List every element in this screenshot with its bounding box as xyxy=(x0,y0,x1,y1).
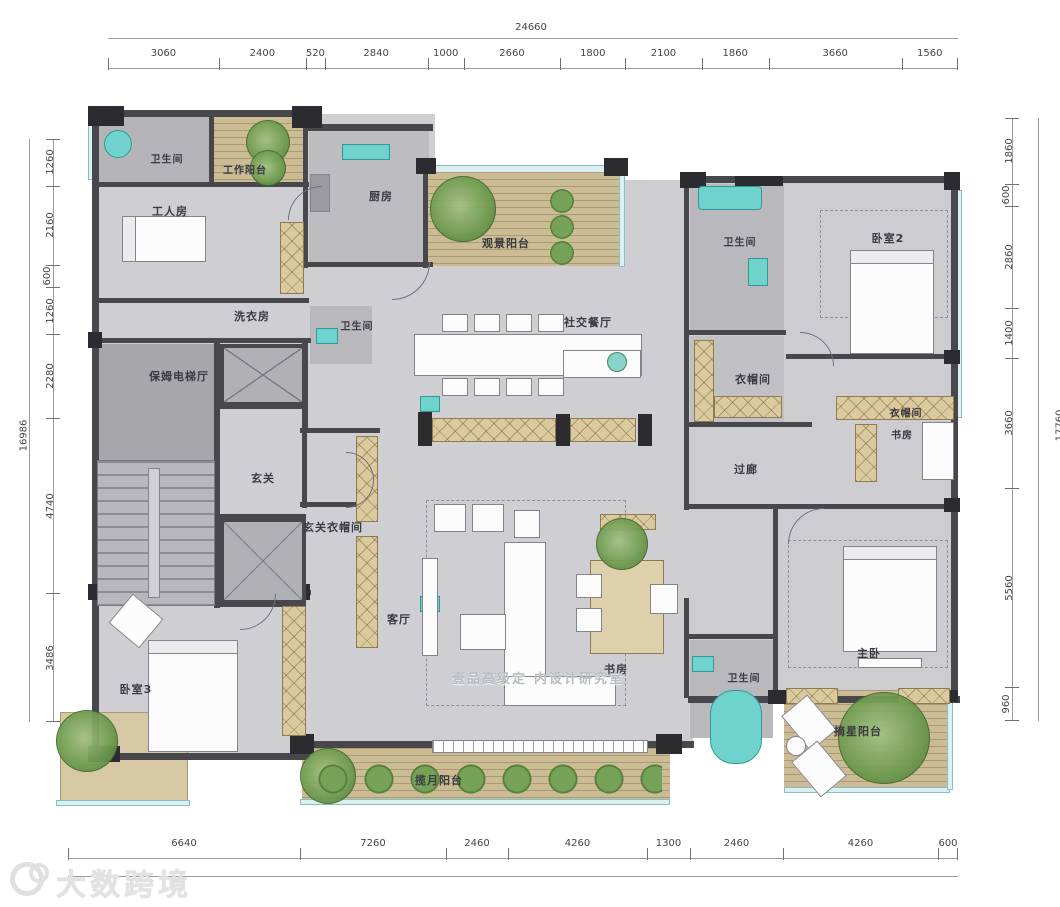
room-label-star-balcony: 摘星阳台 xyxy=(834,723,882,739)
wardrobe-cloak-left-v xyxy=(694,340,714,422)
room-label-laundry: 洗衣房 xyxy=(234,308,270,324)
tv-unit-living xyxy=(514,510,540,538)
wall-segment xyxy=(686,634,778,639)
room-label-master: 主卧 xyxy=(857,645,881,661)
dining-chair xyxy=(538,378,564,396)
basin-bath-center xyxy=(692,656,714,672)
basin-corridor-1 xyxy=(420,396,440,412)
dining-chair xyxy=(538,314,564,332)
elevator-shaft-1 xyxy=(220,344,306,406)
watermark-logo-text: 大数跨境 xyxy=(56,860,192,904)
planter-row-moon xyxy=(432,740,648,753)
armchair-living xyxy=(472,504,504,532)
room-label-bath-small: 卫生间 xyxy=(341,318,374,333)
wall-segment xyxy=(95,298,309,303)
wall-pillar xyxy=(88,332,102,348)
room-label-bath-center: 卫生间 xyxy=(728,670,761,685)
tree-study-center xyxy=(596,518,648,570)
tree-view-balcony xyxy=(430,176,496,242)
coffee-table-living xyxy=(460,614,506,650)
bed-bedroom3-headboard xyxy=(148,640,238,654)
wall-pillar xyxy=(944,172,960,190)
dim-top-overall-line xyxy=(108,38,958,39)
staircase-rail xyxy=(148,468,160,598)
wall-pillar xyxy=(656,734,682,754)
wall-pillar xyxy=(556,414,570,446)
room-label-social-dining: 社交餐厅 xyxy=(564,314,612,330)
watermark-center-part2: 内设计研究室 xyxy=(534,668,624,687)
wardrobe-foyer-corridor-b xyxy=(356,536,378,648)
wall-segment xyxy=(686,422,812,427)
wall-segment xyxy=(92,110,99,344)
room-label-bedroom2: 卧室2 xyxy=(872,230,905,246)
wall-pillar xyxy=(418,412,432,446)
wall-pillar xyxy=(88,106,124,126)
room-label-cloak-1: 衣帽间 xyxy=(735,371,771,387)
dim-top-chain: 3060 2400 520 2840 1000 2660 1800 2100 1… xyxy=(108,50,958,68)
wall-segment xyxy=(209,112,214,186)
armchair-living xyxy=(434,504,466,532)
dim-left-overall: 16986 xyxy=(8,430,40,441)
wall-pillar xyxy=(768,690,786,704)
wardrobe-worker-room xyxy=(280,222,304,294)
basin-bath-tr xyxy=(748,258,768,286)
dim-right-overall: 17760 xyxy=(1044,420,1060,431)
wall-segment xyxy=(305,124,433,131)
round-table-star xyxy=(786,736,806,756)
bathtub-center xyxy=(710,690,762,764)
wall-segment xyxy=(302,428,307,508)
cabinet-hall-row-a xyxy=(432,418,556,442)
wall-pillar xyxy=(604,158,628,176)
elevator-shaft-2 xyxy=(220,518,306,604)
dining-chair xyxy=(442,314,468,332)
room-label-foyer: 玄关 xyxy=(251,470,275,486)
wall-pillar xyxy=(416,158,436,174)
room-label-bath-tr: 卫生间 xyxy=(724,234,757,249)
wall-segment xyxy=(686,330,786,335)
bed-master-headboard xyxy=(843,546,937,560)
dim-bottom-overall-line xyxy=(68,876,958,877)
wall-segment xyxy=(684,330,689,510)
shrub-row-moon-balcony xyxy=(310,758,662,800)
tv-bench-living xyxy=(422,558,438,656)
dining-chair xyxy=(442,378,468,396)
dim-right-overall-line xyxy=(1038,118,1039,721)
wall-segment xyxy=(684,176,689,336)
floor-plan-canvas: 24660 3060 2400 520 2840 1000 2660 1800 … xyxy=(0,0,1060,907)
wall-segment xyxy=(686,176,960,183)
bed-bedroom3 xyxy=(148,640,238,752)
room-label-study-right: 书房 xyxy=(891,427,913,442)
wall-segment xyxy=(95,338,311,343)
wall-segment xyxy=(684,598,689,698)
dim-right-chain: 1860 600 2860 1400 3660 5560 960 xyxy=(999,118,1021,721)
window-view-balcony-right xyxy=(619,173,625,267)
dim-bottom-chain: 6640 7260 2460 4260 1300 2460 4260 600 xyxy=(68,840,958,858)
window-star-balcony-bottom xyxy=(784,787,950,793)
wall-pillar xyxy=(735,176,783,186)
room-label-nanny-hall: 保姆电梯厅 xyxy=(149,368,209,384)
wardrobe-bedroom3 xyxy=(282,606,306,736)
wall-pillar xyxy=(944,350,960,364)
tree-terrace-bl xyxy=(56,710,118,772)
watermark-logo-icon xyxy=(10,862,44,896)
chair-study-center xyxy=(576,574,602,598)
dim-top-overall: 24660 xyxy=(515,22,547,33)
dim-top-line xyxy=(108,68,958,69)
bathtub-top-right xyxy=(698,186,762,210)
shrub-column-view-balcony xyxy=(540,188,584,266)
dining-chair xyxy=(474,314,500,332)
room-label-living: 客厅 xyxy=(387,611,411,627)
wall-pillar xyxy=(944,498,960,512)
wall-pillar xyxy=(292,106,322,128)
room-label-bath-tl: 卫生间 xyxy=(151,151,184,166)
room-label-kitchen: 厨房 xyxy=(369,188,393,204)
bed-worker-pillow xyxy=(122,216,136,262)
wall-pillar xyxy=(638,414,652,446)
wall-segment xyxy=(423,164,428,268)
dining-plant-pot xyxy=(607,352,627,372)
window-star-balcony-right xyxy=(947,690,953,790)
room-label-cloak-2: 衣帽间 xyxy=(890,405,923,420)
bed-bedroom2-headboard xyxy=(850,250,934,264)
wall-segment xyxy=(773,504,778,700)
room-label-view-balcony: 观景阳台 xyxy=(482,235,530,251)
desk-study-right xyxy=(922,422,954,480)
room-label-moon-balcony: 揽月阳台 xyxy=(415,772,463,788)
dining-side-table xyxy=(563,350,641,378)
dim-left-chain: 1260 2160 600 1260 2280 4740 3486 xyxy=(40,139,62,722)
chair-study-center xyxy=(650,584,678,614)
room-label-work-balcony: 工作阳台 xyxy=(223,162,267,177)
room-label-corridor: 过廊 xyxy=(734,461,758,477)
wall-segment xyxy=(300,428,380,433)
dining-chair xyxy=(506,314,532,332)
wardrobe-cloak-left-h xyxy=(714,396,782,418)
kitchen-sink xyxy=(342,144,390,160)
wardrobe-corridor-right xyxy=(855,424,877,482)
wall-pillar xyxy=(290,734,314,754)
bed-bedroom2 xyxy=(850,250,934,354)
dining-chair xyxy=(474,378,500,396)
room-label-bedroom3: 卧室3 xyxy=(120,681,153,697)
cabinet-hall-row-b xyxy=(570,418,636,442)
wall-segment xyxy=(951,176,958,362)
basin-bath-small xyxy=(316,328,338,344)
room-label-foyer-cloak: 玄关衣帽间 xyxy=(303,519,363,535)
wall-segment xyxy=(92,753,310,760)
watermark-center-part1: 壹品高级定 xyxy=(452,668,527,687)
window-terrace-bl xyxy=(56,800,190,806)
basin-round-bath-tl xyxy=(104,130,132,158)
dim-bottom-line xyxy=(68,858,958,859)
dining-chair xyxy=(506,378,532,396)
room-label-worker-room: 工人房 xyxy=(152,203,188,219)
chair-study-center xyxy=(576,608,602,632)
bed-master xyxy=(843,546,937,652)
